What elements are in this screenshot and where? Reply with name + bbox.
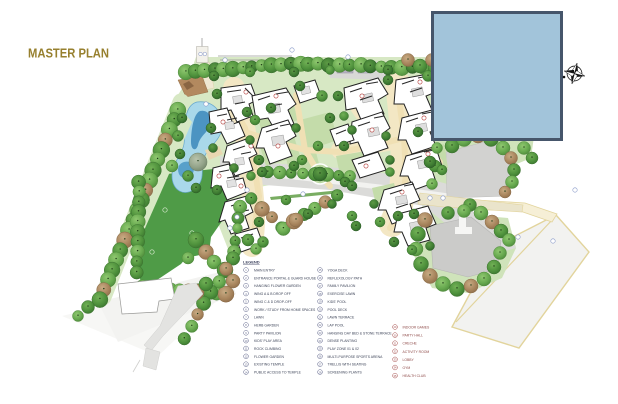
svg-text:GYM: GYM [403, 366, 411, 370]
svg-text:LEGEND: LEGEND [243, 260, 260, 265]
svg-text:POOL DECK: POOL DECK [328, 308, 348, 312]
svg-text:PUBLIC ACCESS TO TEMPLE: PUBLIC ACCESS TO TEMPLE [254, 371, 302, 375]
svg-text:DENSE PLANTING: DENSE PLANTING [328, 339, 358, 343]
svg-text:HERB GARDEN: HERB GARDEN [254, 323, 279, 327]
svg-text:HANGING DAY BED & STONE TERRAC: HANGING DAY BED & STONE TERRACE [328, 331, 393, 335]
svg-text:PARTY PAVILION: PARTY PAVILION [254, 331, 282, 335]
svg-text:YOGA DECK: YOGA DECK [328, 269, 349, 273]
svg-text:PARTY HALL: PARTY HALL [403, 334, 423, 338]
svg-text:MULTI-PURPOSE SPORTS ARENA: MULTI-PURPOSE SPORTS ARENA [328, 355, 384, 359]
svg-text:EXISTING TEMPLE: EXISTING TEMPLE [254, 363, 285, 367]
svg-text:LAWN: LAWN [254, 316, 264, 320]
svg-text:PLAY ZONE 01 & 02: PLAY ZONE 01 & 02 [328, 347, 359, 351]
svg-text:WORK / STUDY FROM HOME SPACES: WORK / STUDY FROM HOME SPACES [254, 308, 316, 312]
svg-text:ENTRANCE PORTAL & GUARD HOUSE: ENTRANCE PORTAL & GUARD HOUSE [254, 276, 317, 280]
svg-text:MAIN ENTRY: MAIN ENTRY [254, 269, 276, 273]
svg-text:ACTIVITY ROOM: ACTIVITY ROOM [403, 350, 430, 354]
svg-text:KIDS' POOL: KIDS' POOL [328, 300, 347, 304]
svg-text:SCREENING PLANTS: SCREENING PLANTS [328, 371, 363, 375]
svg-text:FLOWER GARDEN: FLOWER GARDEN [254, 355, 285, 359]
svg-text:HEALTH CLUB: HEALTH CLUB [403, 374, 427, 378]
svg-text:KIDS' PLAY AREA: KIDS' PLAY AREA [254, 339, 283, 343]
svg-text:REFLEXOLOGY PATH: REFLEXOLOGY PATH [328, 276, 363, 280]
svg-text:TRELLIS WITH SEATING: TRELLIS WITH SEATING [328, 363, 367, 367]
svg-text:INDOOR GAMES: INDOOR GAMES [403, 326, 430, 330]
svg-text:LOBBY: LOBBY [403, 358, 415, 362]
svg-text:LAP POOL: LAP POOL [328, 323, 345, 327]
svg-text:LAWN TERRACE: LAWN TERRACE [328, 316, 355, 320]
svg-text:CRECHE: CRECHE [403, 342, 418, 346]
svg-text:MASTER PLAN: MASTER PLAN [28, 46, 109, 61]
svg-text:WING C & D DROP-OFF: WING C & D DROP-OFF [254, 300, 292, 304]
svg-text:ROCK CLIMBING: ROCK CLIMBING [254, 347, 281, 351]
svg-text:WING A & B DROP OFF: WING A & B DROP OFF [254, 292, 291, 296]
svg-text:EXERCISE LAWN: EXERCISE LAWN [328, 292, 356, 296]
svg-text:HANGING FLOWER GARDEN: HANGING FLOWER GARDEN [254, 284, 301, 288]
svg-text:FAMILY PAVILION: FAMILY PAVILION [328, 284, 356, 288]
